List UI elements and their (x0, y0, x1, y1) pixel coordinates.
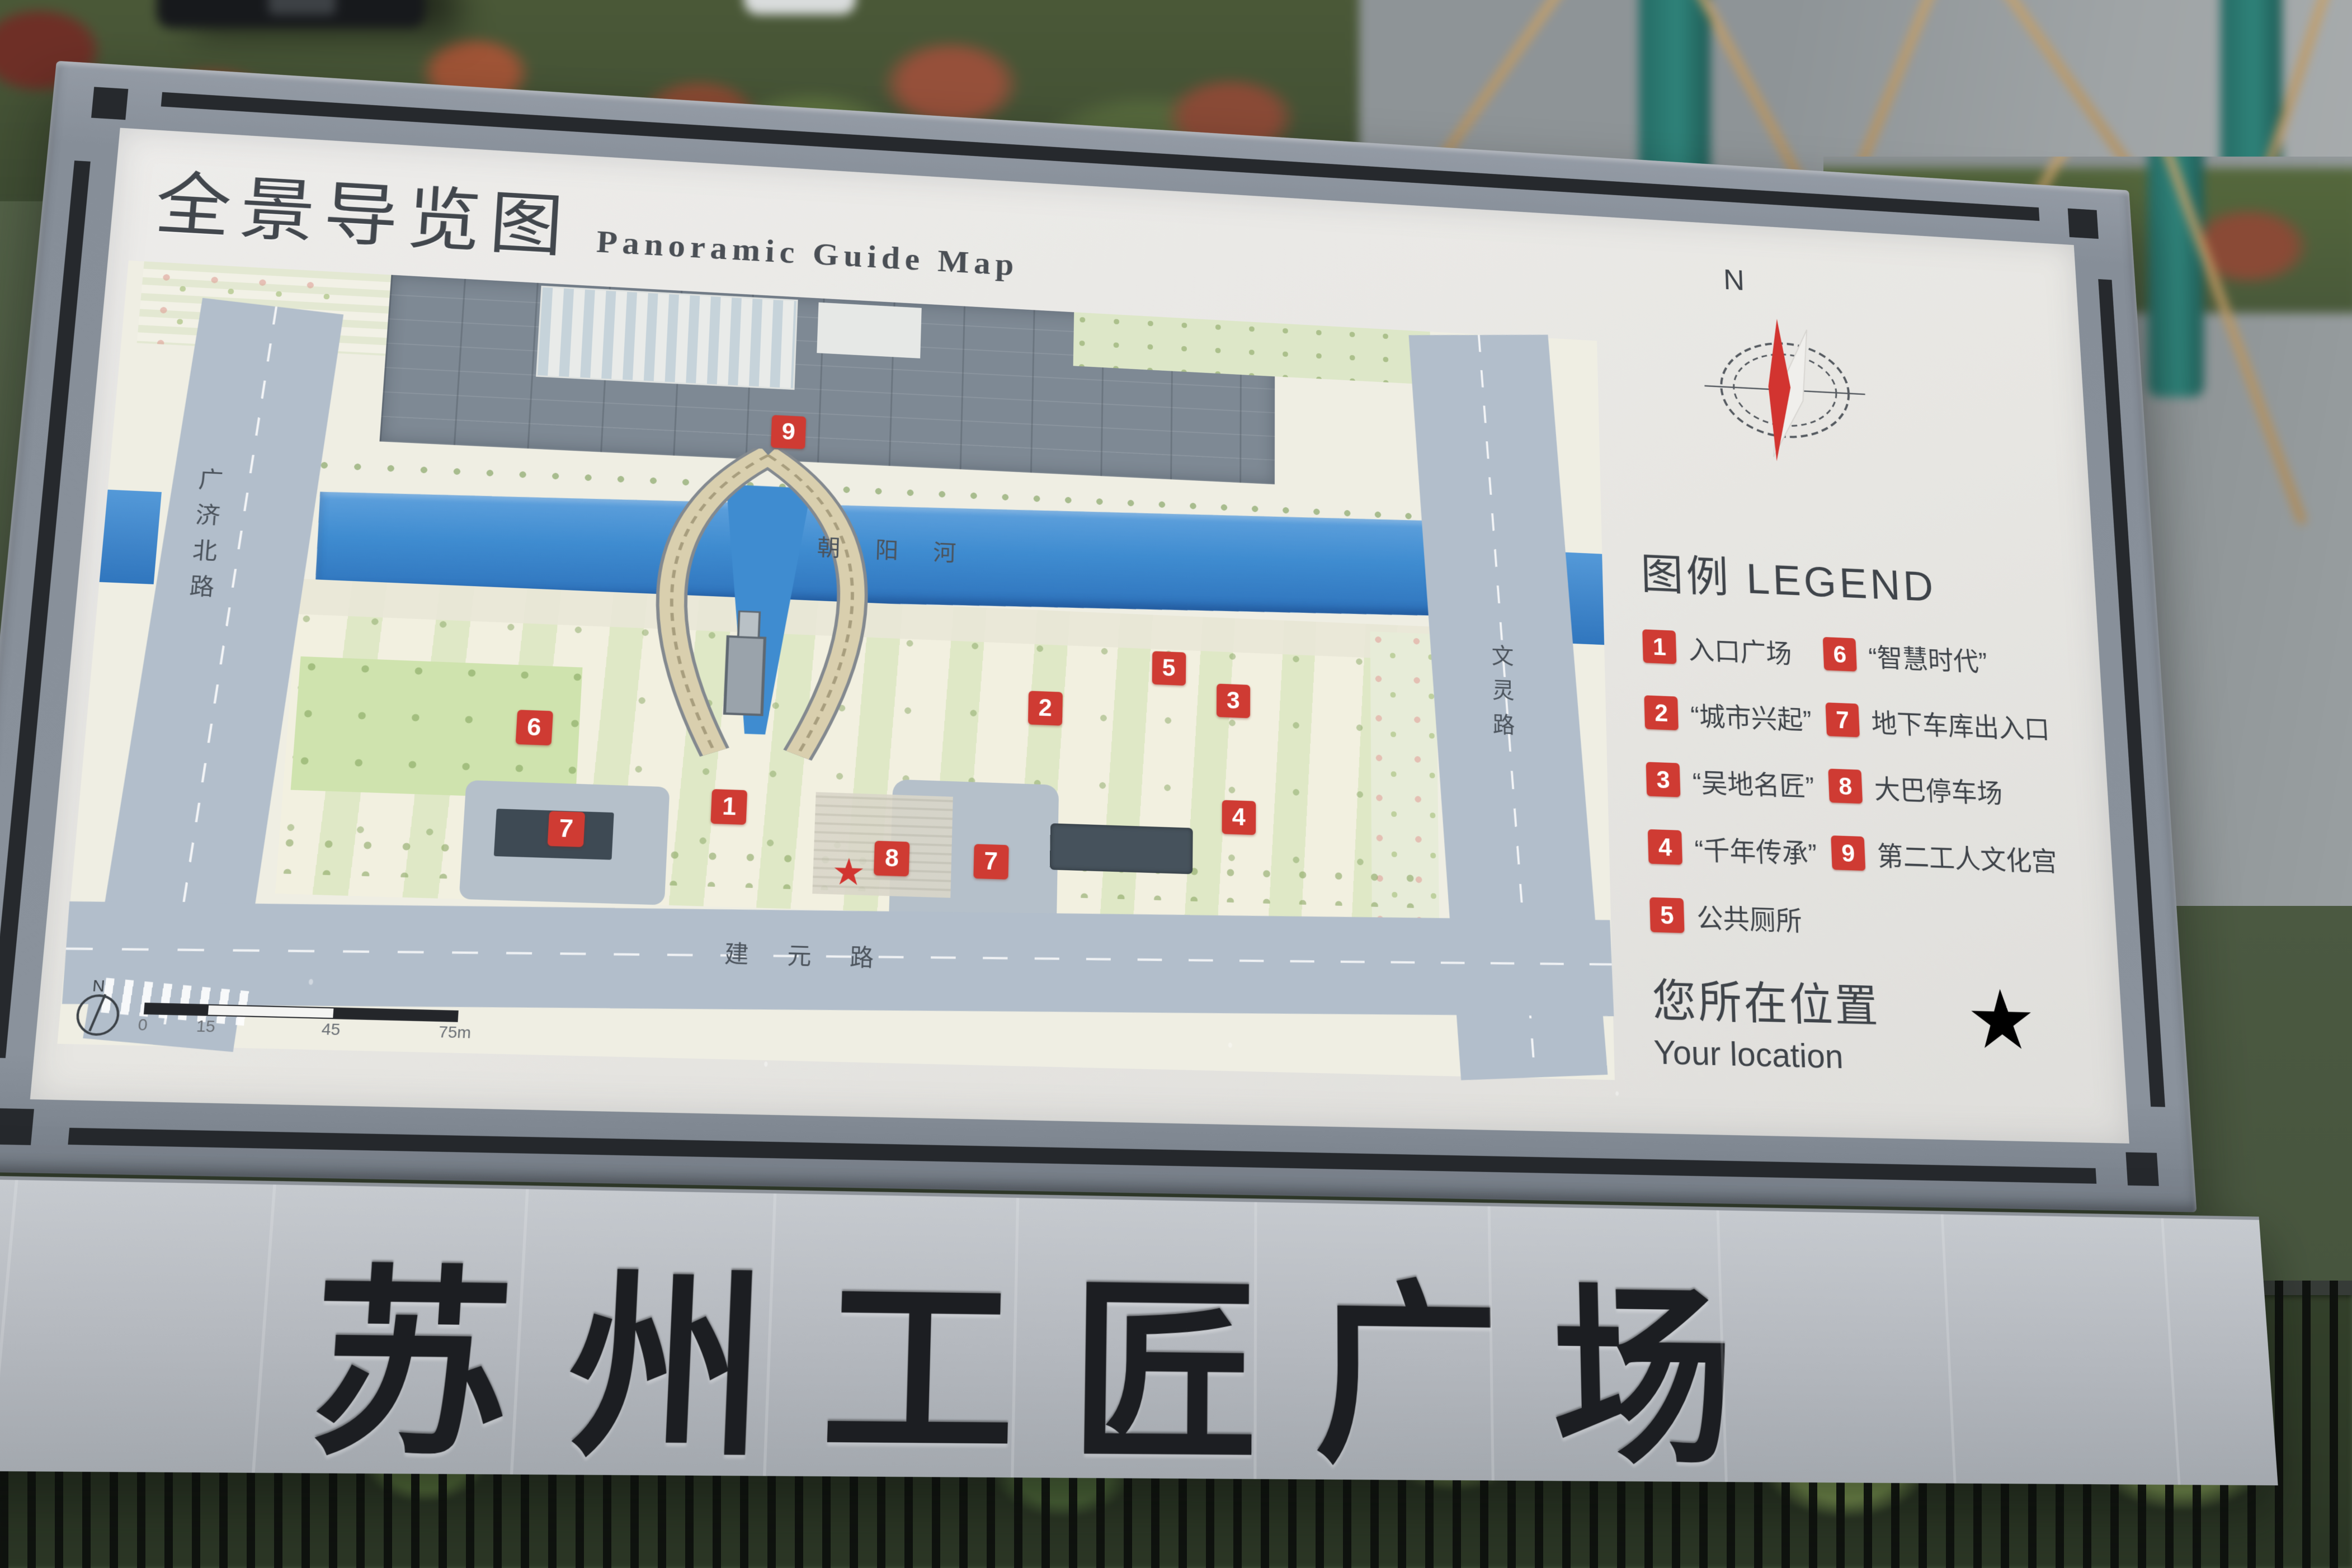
legend-item-8: 8大巴停车场 (1828, 767, 2050, 813)
legend-number-box: 2 (1644, 695, 1678, 730)
legend-item-3: 3“吴地名匠” (1646, 760, 1818, 804)
legend-item-label: “城市兴起” (1690, 695, 1812, 738)
compass-needle-red (1766, 318, 1793, 462)
legend-number-box: 7 (1826, 702, 1860, 737)
legend-item-label: “千年传承” (1694, 829, 1818, 871)
scale-tick-label: 0 (137, 1016, 148, 1035)
title-english: Panoramic Guide Map (596, 224, 1019, 284)
legend-item-4: 4“千年传承” (1648, 827, 1821, 871)
scale-tick-label: 15 (196, 1017, 216, 1036)
frame-corner-notch (2068, 209, 2099, 239)
map-marker-7: 7 (973, 844, 1008, 880)
map-marker-2: 2 (1028, 691, 1063, 725)
guide-map-sign: 全景导览图 Panoramic Guide Map (0, 61, 2215, 1490)
scale-bar: N 0154575m (74, 990, 469, 1049)
frame-corner-notch (0, 1108, 34, 1145)
legend-number-box: 9 (1831, 835, 1865, 871)
map-marker-4: 4 (1222, 800, 1256, 835)
map-marker-9: 9 (771, 415, 806, 449)
marker-layer: 9532641787★ (57, 261, 1614, 1080)
legend-item-1: 1入口广场 (1642, 627, 1813, 672)
legend-number-box: 3 (1646, 762, 1681, 797)
parked-car-white (744, 0, 856, 15)
compass-rose-icon (1699, 301, 1872, 474)
legend-items: 1入口广场2“城市兴起”3“吴地名匠”4“千年传承”5公共厕所6“智慧时代”7地… (1642, 627, 2058, 947)
legend-column: 6“智慧时代”7地下车库出入口8大巴停车场9第二工人文化宫 (1823, 635, 2058, 946)
frame-corner-notch (91, 87, 128, 120)
sign-name-band: 苏州工匠广场 (0, 1174, 2278, 1485)
map-marker-5: 5 (1152, 651, 1186, 686)
legend-number-box: 4 (1648, 829, 1682, 865)
map-marker-7: 7 (547, 811, 585, 847)
legend-item-6: 6“智慧时代” (1823, 635, 2043, 681)
legend-number-box: 1 (1642, 629, 1676, 664)
legend-item-label: 地下车库出入口 (1870, 702, 2051, 747)
legend-item-2: 2“城市兴起” (1644, 693, 1816, 738)
legend-item-label: 入口广场 (1688, 629, 1793, 671)
compass-north-label: N (1723, 263, 1745, 297)
frame-corner-notch (2125, 1152, 2158, 1186)
car-grill (268, 0, 336, 15)
wrapped-tree-trunk (2148, 157, 2204, 397)
legend-column: 1入口广场2“城市兴起”3“吴地名匠”4“千年传承”5公共厕所 (1642, 627, 1823, 939)
rain-streaks (0, 1178, 2278, 1486)
your-location-block: 您所在位置 Your location ★ (1651, 964, 2055, 1081)
legend-item-label: 第二工人文化宫 (1877, 835, 2058, 879)
small-compass-icon: N (75, 994, 121, 1036)
legend-item-label: 大巴停车场 (1873, 768, 2003, 811)
legend-item-9: 9第二工人文化宫 (1831, 833, 2054, 879)
legend-heading: 图例 LEGEND (1640, 539, 1938, 613)
map-board-panel: 全景导览图 Panoramic Guide Map (30, 128, 2129, 1144)
map-marker-3: 3 (1217, 684, 1250, 719)
legend-item-label: 公共厕所 (1696, 896, 1803, 938)
legend-item-5: 5公共厕所 (1649, 895, 1823, 939)
map-marker-6: 6 (515, 710, 553, 745)
map-marker-1: 1 (711, 789, 748, 825)
compass-north-label: N (92, 976, 106, 995)
scale-tick-label: 45 (321, 1020, 341, 1039)
legend-number-box: 6 (1823, 637, 1857, 672)
sign-frame: 全景导览图 Panoramic Guide Map (0, 61, 2197, 1212)
legend-number-box: 8 (1828, 768, 1863, 804)
location-star-icon: ★ (1964, 978, 2038, 1061)
legend-number-box: 5 (1649, 897, 1684, 933)
title-chinese: 全景导览图 (152, 148, 575, 271)
map-marker-8: 8 (874, 840, 909, 876)
legend-item-label: “吴地名匠” (1692, 762, 1815, 804)
site-plan-map: 朝阳河 建元路 广济北路 文灵路 9532641787★ N 0154575m (57, 261, 1614, 1080)
legend-item-7: 7地下车库出入口 (1825, 700, 2046, 746)
scale-tick-label: 75m (438, 1023, 472, 1042)
you-are-here-star: ★ (831, 853, 866, 891)
legend-panel: N 图例 LEGEND 1入口广场2“城市兴起”3“吴地名匠”4“千年传承”5公… (1622, 238, 2067, 1101)
legend-item-label: “智慧时代” (1868, 637, 1988, 679)
